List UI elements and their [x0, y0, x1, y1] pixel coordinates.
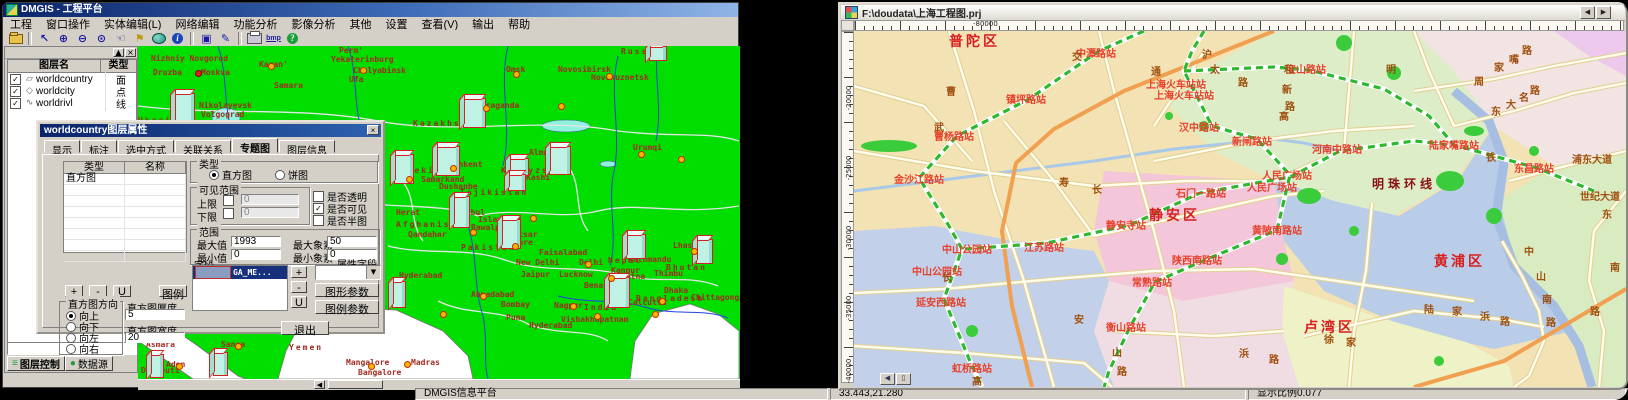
city-marker — [638, 151, 645, 158]
layer-properties-dialog: worldcountry图层属性 × 显示标注选中方式关联关系专题图图层信息 类… — [36, 120, 385, 334]
map-label-city: Bangalore — [358, 368, 401, 377]
flag-icon[interactable]: ⚑ — [131, 31, 148, 45]
map-label-station: 石门一路站 — [1176, 185, 1226, 200]
map-label-station: 河南中路站 — [1312, 141, 1362, 156]
table-row[interactable] — [64, 185, 186, 196]
map-label-street: 浜 — [1480, 308, 1490, 323]
city-marker — [606, 73, 613, 80]
city-marker — [659, 298, 666, 305]
field-listbox[interactable]: GA_ME... — [192, 265, 288, 311]
ruler-horizontal: -80000 — [854, 20, 1624, 31]
map-label-station: 江苏路站 — [1024, 239, 1064, 254]
table-row[interactable] — [64, 207, 186, 218]
title-scroll-button[interactable]: ▶ — [1596, 6, 1611, 19]
table-col-name: 名称 — [125, 162, 186, 173]
ruler-label: -25000 — [845, 153, 853, 183]
layer-type-icon: ▱ — [23, 74, 36, 84]
histogram-bar — [392, 281, 406, 308]
map-label-street: 新 — [1282, 81, 1292, 96]
map-label-street: 家 — [1452, 303, 1462, 318]
histogram-bar — [649, 46, 667, 61]
map-label-station: 静安寺站 — [1106, 217, 1146, 232]
range-limit-input[interactable]: 0 — [241, 207, 299, 218]
direction-group: 直方图方向 向上向下向左向右 — [59, 301, 123, 355]
map-label-street: 曹 — [946, 83, 956, 98]
city-marker — [406, 176, 413, 183]
map-label-city: Druzba — [153, 68, 182, 77]
print-icon[interactable] — [246, 31, 263, 45]
map-label-street: 南 — [1542, 291, 1552, 306]
map-label-street: 通 — [1151, 63, 1161, 78]
type-radio[interactable]: 饼图 — [275, 167, 308, 182]
layer-geom-type: 线 — [105, 96, 136, 111]
map-label-street: 陆 — [1424, 301, 1434, 316]
city-marker — [594, 313, 601, 320]
map-label-city: Bombay — [501, 300, 530, 309]
city-marker — [176, 363, 183, 370]
map-label-station: 中潭路站 — [1076, 45, 1116, 60]
layer-panel-tabs: ≡图层控制●数据源 — [7, 356, 137, 371]
layer-name: worldrivl — [36, 98, 105, 109]
shanghai-map-view[interactable]: 普陀区静安区黄浦区卢湾区明珠环线中潭路站镇坪路站曹杨路站上海火车站站上海火车站站… — [854, 31, 1626, 387]
dialog-titlebar[interactable]: worldcountry图层属性 — [40, 124, 381, 137]
city-marker — [195, 70, 202, 77]
map-label-city: Nagpur — [554, 301, 583, 310]
combo-dropdown-icon[interactable]: ▼ — [366, 266, 380, 279]
field-color-swatch — [195, 266, 231, 279]
map-label-street: 路 — [1546, 314, 1556, 329]
map-label-station: 东昌路站 — [1514, 160, 1554, 175]
map-label-station: 中山公园站 — [942, 241, 992, 256]
map-label-station: 黄陂南路站 — [1252, 222, 1302, 237]
dmgis-app-icon — [6, 4, 18, 16]
dialog-title: worldcountry图层属性 — [44, 125, 147, 136]
range-limit-input[interactable]: 0 — [241, 194, 299, 205]
graphic-params-button[interactable]: 图形参数 — [315, 283, 379, 297]
table-row[interactable] — [64, 240, 186, 251]
column-layer-type[interactable]: 类型 — [101, 60, 136, 72]
map-label-street: 武 — [934, 119, 944, 134]
scrollbar-button[interactable]: ▯ — [896, 373, 911, 385]
city-marker — [558, 103, 565, 110]
map-label-street: 山 — [1536, 268, 1546, 283]
table-row[interactable] — [64, 218, 186, 229]
map-label-street: 路 — [1522, 42, 1532, 57]
toolbar-separator — [28, 32, 32, 45]
type-radio[interactable]: 直方图 — [209, 167, 252, 182]
histogram-bar — [626, 234, 646, 259]
map-label-station: 陆家嘴路站 — [1429, 137, 1479, 152]
panel-pin-button[interactable]: ▲ — [113, 48, 124, 57]
map-label-city: Moskva — [201, 68, 230, 77]
map-label-street: 家 — [1346, 334, 1356, 349]
layer-type-icon: ∿ — [23, 98, 36, 108]
table-row[interactable] — [64, 196, 186, 207]
layer-row[interactable]: ✓∿worldrivl线 — [8, 97, 136, 109]
pointer-icon[interactable]: ↖ — [36, 31, 53, 45]
field-button-U[interactable]: U — [291, 296, 307, 308]
range-limit-checkbox[interactable] — [223, 208, 234, 219]
map-label-station: 中山公园站 — [912, 263, 962, 278]
attr-field-combo[interactable]: ▼ — [315, 265, 381, 280]
exit-button[interactable]: 退出 — [281, 321, 329, 335]
map-label-city: Ufa — [349, 75, 363, 84]
dialog-body: 类型 名称 直方图 +-U 图例 直方图方向 向上向下向左向右 直方图厚度 5 … — [42, 154, 379, 328]
map-label-street: 浦东大道 — [1572, 151, 1612, 166]
dialog-close-button[interactable]: × — [367, 125, 379, 135]
info-icon[interactable]: i — [169, 31, 186, 45]
map-label-city: Urumqi — [633, 143, 662, 152]
map-label-street: 徐 — [1324, 331, 1334, 346]
layer-name: worldcity — [36, 86, 105, 97]
city-marker — [691, 248, 698, 255]
scroll-thumb[interactable] — [328, 380, 383, 389]
map-label-city: Yekaterinburg — [331, 55, 394, 64]
scrollbar-button[interactable]: ◀ — [880, 373, 895, 385]
map-label-street: 东 — [1602, 206, 1612, 221]
map-label-district: 普陀区 — [949, 31, 1000, 51]
zoom-out-icon[interactable]: ⊖ — [74, 31, 91, 45]
globe-icon[interactable] — [150, 31, 167, 45]
range-field-input[interactable]: 0 — [231, 249, 281, 260]
map-label-city: Chittagong — [691, 293, 739, 302]
histogram-bar — [696, 239, 713, 264]
dialog-tab[interactable]: 图层信息 — [279, 140, 335, 153]
map-label-country: Yemen — [289, 343, 323, 352]
map-label-city: Faisalabad — [539, 248, 587, 257]
panel-close-button[interactable]: × — [125, 48, 136, 57]
flag-checkbox[interactable]: 是否半图 — [313, 213, 367, 228]
map-label-street: 路 — [1590, 303, 1600, 318]
map-label-city: Thimbu — [654, 269, 683, 278]
map-label-station: 汉中路站 — [1179, 119, 1219, 134]
map-label-street: 浜 — [1239, 345, 1249, 360]
map-label-street: 大 — [1506, 96, 1516, 111]
map-label-city: Puna — [506, 313, 525, 322]
field-button--[interactable]: - — [291, 281, 307, 293]
city-marker — [652, 311, 659, 318]
field-name: GA_ME... — [233, 268, 272, 277]
histogram-bar — [463, 98, 486, 128]
table-row[interactable] — [64, 229, 186, 240]
field-selected-row[interactable]: GA_ME... — [193, 266, 287, 279]
range-limit-checkbox[interactable] — [223, 195, 234, 206]
table-row[interactable]: 直方图 — [64, 174, 186, 185]
map-label-street: 南 — [1610, 259, 1620, 274]
type-group: 类型 直方图饼图 — [190, 161, 378, 183]
map-label-street: 路 — [1238, 74, 1248, 89]
ruler-label: -80000 — [973, 20, 998, 28]
map-label-station: 镇坪路站 — [1006, 91, 1046, 106]
panel-tab-inactive[interactable]: ●数据源 — [65, 356, 113, 371]
bmp-export-icon[interactable]: bmp — [265, 31, 282, 45]
ruler-corner — [841, 20, 854, 31]
map-label-station: 金沙江路站 — [894, 171, 944, 186]
map-label-street: 中 — [1524, 243, 1534, 258]
status-cell: DMGIS信息平台 — [415, 388, 828, 400]
zoom-window-icon[interactable]: ⊙ — [93, 31, 110, 45]
city-marker — [608, 275, 615, 282]
layer-checkbox[interactable]: ✓ — [10, 74, 21, 85]
map-label-city: Nizhniy Novgorod — [151, 54, 228, 63]
map-label-station: 上海火车站站 — [1154, 87, 1214, 102]
map-label-street: 长 — [1092, 181, 1102, 196]
range-field-input[interactable]: 1993 — [231, 236, 281, 247]
pan-icon[interactable]: ☜ — [112, 31, 129, 45]
map-label-street: 路 — [1269, 351, 1279, 366]
shanghai-map-labels: 普陀区静安区黄浦区卢湾区明珠环线中潭路站镇坪路站曹杨路站上海火车站站上海火车站站… — [854, 31, 1626, 387]
city-marker — [483, 105, 490, 112]
map-label-street: 名 — [1519, 89, 1529, 104]
map-label-city: Qandahar — [408, 230, 447, 239]
dialog-tab[interactable]: 显示 — [44, 140, 80, 153]
map-label-street: 安 — [1074, 311, 1084, 326]
title-scroll-buttons: ◀▶ — [1580, 6, 1611, 19]
help-icon[interactable]: ? — [284, 31, 301, 45]
map-label-street: 和 — [1284, 61, 1294, 76]
legend-button[interactable]: 图例 — [159, 285, 187, 297]
map-label-street: 太 — [1210, 61, 1220, 76]
city-marker — [513, 71, 520, 78]
bar-width-input[interactable]: 20 — [125, 332, 185, 343]
range-field-input[interactable]: 50 — [327, 236, 377, 247]
title-scroll-button[interactable]: ◀ — [1580, 6, 1595, 19]
right-window-titlebar[interactable]: F:\doudata\上海工程图.prj ◀▶ — [841, 5, 1625, 21]
map-label-city: New Delhi — [516, 258, 559, 267]
dialog-tab[interactable]: 选中方式 — [118, 140, 174, 153]
range-limit-label: 下限 — [197, 209, 217, 224]
layer-checkbox[interactable]: ✓ — [10, 98, 21, 109]
ruler-vertical: -20000-25000-30000-35000-40000 — [841, 31, 854, 383]
theme-type-table[interactable]: 类型 名称 直方图 — [63, 161, 187, 253]
map-label-city: Ahmadabad — [471, 290, 514, 299]
right-window-scrollbar[interactable]: ◀▯ — [880, 373, 911, 385]
map-label-street: 明 — [1386, 61, 1396, 76]
map-label-city: Lucknow — [559, 270, 593, 279]
table-row[interactable] — [64, 251, 186, 262]
map-label-district: 静安区 — [1149, 205, 1200, 225]
map-label-station: 陕西南路站 — [1172, 252, 1222, 267]
table-col-type: 类型 — [64, 162, 125, 173]
city-marker — [450, 165, 457, 172]
shanghai-map-window: F:\doudata\上海工程图.prj ◀▶ -80000 -20000-25… — [838, 2, 1628, 390]
map-label-street: 高 — [972, 373, 982, 387]
field-button-+[interactable]: + — [291, 266, 307, 278]
map-label-street: 路 — [1530, 82, 1540, 97]
map-label-city: Novokuznetsk — [591, 73, 649, 82]
city-marker — [512, 243, 519, 250]
layer-panel-header: ▲× — [5, 47, 137, 59]
zoom-in-icon[interactable]: ⊕ — [55, 31, 72, 45]
map-label-street: 世纪大道 — [1580, 188, 1620, 203]
map-label-city: Hyderabad — [399, 271, 442, 280]
histogram-bar — [213, 352, 228, 376]
city-marker — [480, 293, 487, 300]
toolbar: ↖⊕⊖⊙☜⚑i▣✎bmp? — [3, 30, 738, 46]
map-label-city: Nikolayevsk — [199, 101, 252, 110]
map-label-station: 衡山路站 — [1106, 319, 1146, 334]
city-marker — [470, 229, 477, 236]
visible-range-group: 可见范围 上限0下限0 — [190, 187, 310, 225]
direction-radio[interactable]: 向右 — [66, 341, 99, 356]
map-label-street: 周 — [1474, 73, 1484, 88]
histogram-bar — [150, 354, 164, 378]
select-rect-icon[interactable]: ▣ — [198, 31, 215, 45]
city-marker — [530, 215, 537, 222]
map-doc-icon — [845, 6, 858, 19]
map-label-station: 人民广场站 — [1247, 179, 1297, 194]
map-label-street: 寿 — [1059, 174, 1069, 189]
map-label-district: 黄浦区 — [1434, 251, 1485, 271]
map-label-city: Volgograd — [201, 110, 244, 119]
right-window-title: F:\doudata\上海工程图.prj — [862, 5, 981, 20]
map-label-street: 长 — [942, 269, 952, 284]
city-marker — [570, 303, 577, 310]
layer-name: worldcountry — [36, 74, 105, 85]
dialog-tab[interactable]: 关联关系 — [175, 140, 231, 153]
desktop: DMGIS - 工程平台 工程窗口操作实体编辑(L)网络编辑功能分析影像分析其他… — [0, 0, 1628, 400]
map-label-station: 常熟路站 — [1132, 274, 1172, 289]
city-marker — [360, 67, 367, 74]
map-label-city: Madras — [411, 358, 440, 367]
map-label-street: 路 — [1117, 363, 1127, 378]
histogram-bar — [549, 146, 571, 175]
ruler-label: -30000 — [845, 223, 853, 253]
column-layer-name[interactable]: 图层名 — [8, 60, 101, 72]
toolbar-separator — [238, 32, 242, 45]
open-folder-icon[interactable] — [7, 31, 24, 45]
map-label-city: Jaipur — [521, 270, 550, 279]
ruler-label: -40000 — [845, 356, 853, 386]
panel-tab-active[interactable]: ≡图层控制 — [7, 356, 65, 371]
ruler-label: -35000 — [845, 293, 853, 323]
dialog-tabs: 显示标注选中方式关联关系专题图图层信息 — [44, 140, 336, 154]
city-marker — [440, 311, 447, 318]
city-marker — [368, 363, 375, 370]
thickness-input[interactable]: 5 — [125, 309, 185, 320]
map-label-station: 延安西路站 — [916, 294, 966, 309]
city-marker — [678, 156, 685, 163]
legend-params-button[interactable]: 图例参数 — [315, 300, 379, 314]
map-label-city: Perm' — [339, 46, 363, 55]
map-label-street: 家 — [1494, 59, 1504, 74]
toolbar-separator — [190, 32, 194, 45]
map-label-street: 路 — [1500, 313, 1510, 328]
histogram-bar — [436, 146, 460, 176]
layer-checkbox[interactable]: ✓ — [10, 86, 21, 97]
map-label-street: 沪 — [1202, 46, 1212, 61]
measure-icon[interactable]: ✎ — [217, 31, 234, 45]
map-label-city: Herat — [396, 208, 420, 217]
map-label-street: 东 — [1491, 103, 1501, 118]
map-label-street: 山 — [1112, 344, 1122, 359]
city-marker — [268, 63, 275, 70]
map-label-street: 交 — [1072, 48, 1082, 63]
menubar: 工程窗口操作实体编辑(L)网络编辑功能分析影像分析其他设置查看(V)输出帮助 — [3, 17, 738, 31]
map-label-city: Samara — [274, 81, 303, 90]
map-label-street: 高 — [1279, 108, 1289, 123]
ruler-label: -20000 — [845, 83, 853, 113]
city-marker — [404, 361, 411, 368]
panel-tab-icon: ≡ — [12, 358, 18, 369]
map-label-street: 铁 — [1486, 149, 1496, 164]
map-label-line: 明珠环线 — [1372, 175, 1436, 192]
histogram-bar — [453, 196, 470, 228]
map-label-station: 新闸路站 — [1232, 133, 1272, 148]
scroll-left-arrow[interactable]: ◀ — [314, 380, 325, 389]
dialog-tab[interactable]: 标注 — [81, 140, 117, 153]
layer-type-icon: ◇ — [23, 86, 36, 96]
city-marker — [235, 343, 242, 350]
dialog-tab[interactable]: 专题图 — [232, 138, 278, 153]
histogram-bar — [508, 174, 526, 191]
city-marker — [585, 261, 592, 268]
panel-tab-icon: ● — [70, 358, 76, 369]
map-label-street: 嘴 — [1509, 51, 1519, 66]
